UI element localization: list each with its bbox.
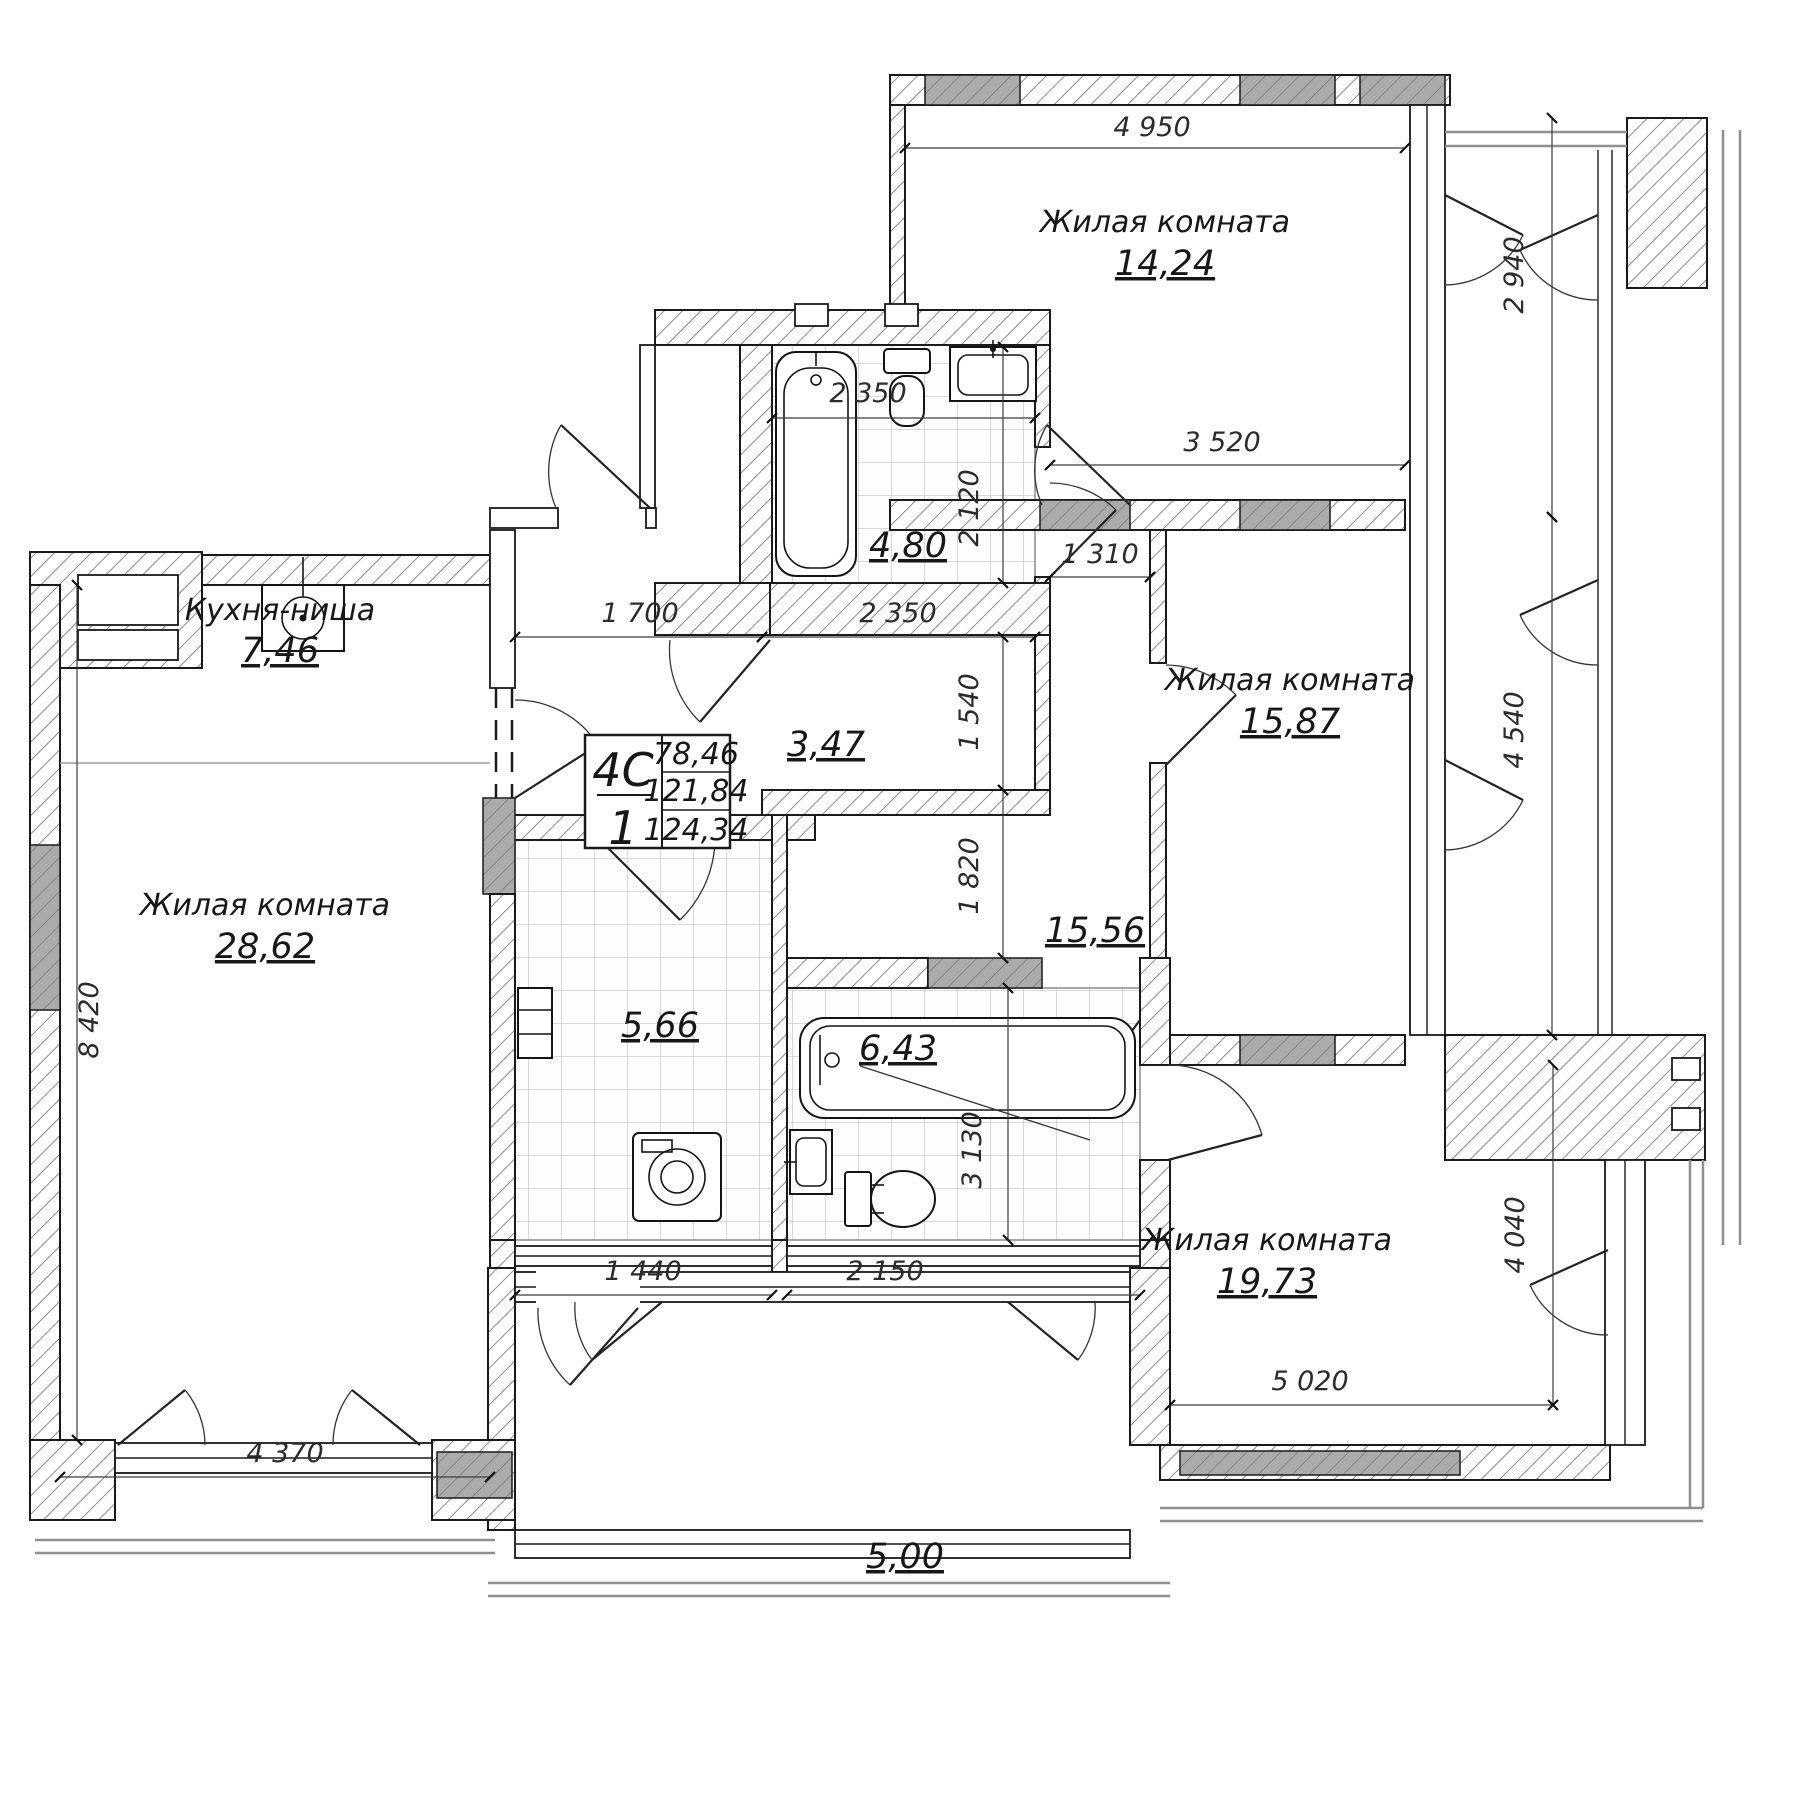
- door-lintel: [1240, 500, 1330, 530]
- laundry-area: 5,66: [621, 1006, 699, 1046]
- wall-bath-top: [655, 310, 1050, 345]
- dim-text: 5 020: [1271, 1366, 1348, 1397]
- door-room-bottom: [1168, 1065, 1262, 1160]
- bathtub2-icon: [800, 1018, 1135, 1118]
- pier-facade-step: [1445, 1035, 1705, 1160]
- sink2-icon: [784, 1130, 832, 1194]
- room-left-area: 28,62: [215, 927, 315, 967]
- towel-rail-icon: [518, 988, 552, 1058]
- dim-text: 1 700: [601, 598, 678, 629]
- balcony-casement: [1520, 580, 1598, 665]
- door-lintel: [928, 958, 1042, 988]
- window-casement: [1008, 1302, 1095, 1360]
- window-lintel: [437, 1452, 512, 1498]
- vent-duct: [78, 575, 178, 625]
- wall-bath2-right-upper: [1140, 958, 1170, 1065]
- door-lintel: [483, 798, 515, 894]
- door-entry-top: [549, 425, 650, 508]
- pier-top-right: [1627, 118, 1707, 288]
- dim-text: 4 540: [1499, 691, 1530, 768]
- hall-area: 3,47: [787, 725, 865, 765]
- walls: [30, 75, 1707, 1530]
- floor-plan-page: 4 950 2 940 4 540 3 520 1 310 1 700 2 35…: [0, 0, 1800, 1800]
- room-mid-name: Жилая комната: [1163, 663, 1415, 698]
- pier: [772, 1240, 787, 1272]
- dim-text: 3 520: [1183, 427, 1260, 458]
- room-left-name: Жилая комната: [138, 888, 390, 923]
- wall-hall-bottom: [762, 790, 1050, 815]
- room-top-name: Жилая комната: [1038, 205, 1290, 240]
- door-lintel: [1040, 500, 1130, 530]
- window-casement: [333, 1390, 420, 1445]
- wall-room-top-left: [890, 105, 905, 310]
- dim-text: 2 350: [829, 378, 906, 409]
- partition-bath-side: [640, 345, 655, 508]
- wall-bath-left: [740, 345, 772, 583]
- kitchen-name: Кухня-ниша: [185, 593, 375, 628]
- dim-text: 1 310: [1061, 539, 1138, 570]
- toilet2-icon: [845, 1171, 935, 1227]
- window-lintel: [925, 75, 1020, 105]
- partition-entry-jamb: [646, 508, 656, 528]
- pier-notch: [1672, 1108, 1700, 1130]
- window-lintel: [1180, 1451, 1460, 1475]
- dim-text: 1 540: [954, 673, 985, 750]
- wall-living-right: [490, 894, 515, 1240]
- partition-entry: [490, 508, 558, 528]
- unit-info-table: 4C 1 78,46 121,84 124,34: [585, 735, 748, 855]
- wall-laundry-bath2: [772, 815, 787, 1240]
- floor-plan-drawing: 4 950 2 940 4 540 3 520 1 310 1 700 2 35…: [0, 0, 1800, 1800]
- washing-machine-icon: [633, 1133, 721, 1221]
- vent-notch: [795, 304, 828, 326]
- wall-corridor-left: [1035, 635, 1050, 790]
- dim-text: 2 350: [859, 598, 936, 629]
- balcony-casement: [1520, 215, 1598, 300]
- room-mid-area: 15,87: [1240, 702, 1340, 742]
- window-casement: [1445, 760, 1523, 850]
- loggia-area: 5,00: [866, 1537, 944, 1577]
- window-lintel: [1240, 1035, 1335, 1065]
- kitchen-area: 7,46: [241, 631, 319, 671]
- balcony-casement: [1530, 1250, 1608, 1335]
- door-hall: [669, 640, 770, 722]
- unit-total-area: 124,34: [644, 813, 749, 848]
- dim-text: 8 420: [74, 981, 105, 1058]
- window-casement: [118, 1390, 205, 1445]
- partition-kitchen-hall: [490, 530, 515, 688]
- room-bottom-name: Жилая комната: [1140, 1223, 1392, 1258]
- vent-notch: [885, 304, 918, 326]
- dim-text: 2 150: [846, 1256, 923, 1287]
- window-lintel: [1360, 75, 1445, 105]
- unit-count: 1: [608, 801, 637, 855]
- vent-duct: [78, 630, 178, 660]
- sink-icon: [950, 340, 1036, 401]
- window-lintel: [1240, 75, 1335, 105]
- bathroom-area: 4,80: [869, 526, 947, 566]
- dim-text: 3 130: [957, 1111, 988, 1188]
- dim-text: 4 950: [1113, 112, 1190, 143]
- dim-text: 1 820: [954, 837, 985, 914]
- wall-room-mid-left-upper: [1150, 530, 1166, 663]
- bathroom2-area: 6,43: [859, 1029, 937, 1069]
- dim-text: 2 120: [954, 469, 985, 546]
- wall-bath-right-upper: [1035, 345, 1050, 447]
- wall-left-exterior: [30, 585, 60, 1490]
- pier-notch: [1672, 1058, 1700, 1080]
- dim-text: 1 440: [604, 1256, 681, 1287]
- dim-text: 4 370: [246, 1438, 323, 1469]
- dim-text: 4 040: [1500, 1196, 1531, 1273]
- unit-area: 121,84: [644, 774, 749, 809]
- door-loggia: [538, 1308, 638, 1385]
- room-top-area: 14,24: [1115, 244, 1215, 284]
- window-lintel-left: [30, 845, 60, 1010]
- corridor-area: 15,56: [1045, 911, 1145, 951]
- unit-living-area: 78,46: [653, 737, 739, 772]
- dim-text: 2 940: [1499, 236, 1530, 313]
- wall-bath2-top: [787, 958, 928, 988]
- room-bottom-area: 19,73: [1217, 1262, 1317, 1302]
- pier-bottom-left: [30, 1440, 115, 1520]
